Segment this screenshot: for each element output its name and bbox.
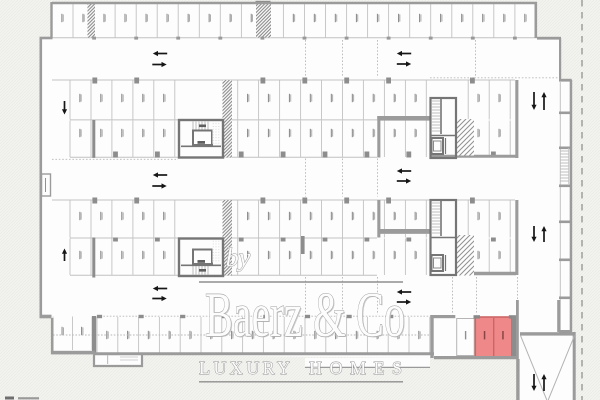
svg-text:by: by (226, 243, 251, 272)
svg-text:Baerz & Co: Baerz & Co (205, 279, 405, 350)
